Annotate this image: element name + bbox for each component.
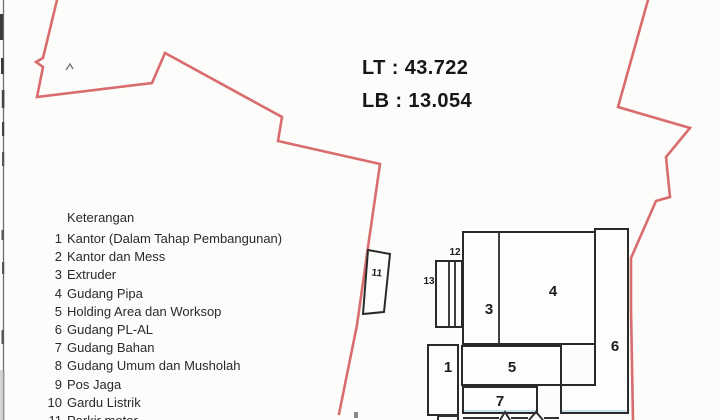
legend-item-label: Extruder [67, 267, 116, 282]
scan-edge-artifact [0, 0, 5, 420]
legend-item: 9Pos Jaga [42, 376, 282, 394]
building-6-label: 6 [611, 338, 619, 355]
buildings [363, 229, 628, 420]
legend-item: 4Gudang Pipa [42, 285, 282, 303]
legend-item: 1Kantor (Dalam Tahap Pembangunan) [42, 230, 282, 248]
building-1-outline [428, 345, 458, 415]
legend-item-number: 9 [42, 376, 62, 394]
legend-item-label: Kantor dan Mess [67, 249, 165, 264]
legend-item-number: 2 [42, 248, 62, 266]
building-3-4-outline [463, 232, 595, 344]
building-13-label: 13 [423, 276, 435, 287]
legend-item-number: 3 [42, 266, 62, 284]
building-1-label: 1 [444, 359, 452, 376]
legend-item-number: 5 [42, 303, 62, 321]
legend-item: 7Gudang Bahan [42, 339, 282, 357]
legend-item: 10Gardu Listrik [42, 394, 282, 412]
legend-item-label: Kantor (Dalam Tahap Pembangunan) [67, 231, 282, 246]
legend-item-label: Parkir motor [67, 413, 138, 420]
legend-item: 2Kantor dan Mess [42, 248, 282, 266]
legend-item-number: 7 [42, 339, 62, 357]
land-area-value: LT : 43.722 [362, 58, 468, 78]
building-5-label: 5 [508, 359, 516, 376]
legend-item-number: 10 [42, 394, 62, 412]
legend-list: 1Kantor (Dalam Tahap Pembangunan) 2Kanto… [42, 230, 282, 420]
legend: Keterangan 1Kantor (Dalam Tahap Pembangu… [42, 209, 282, 420]
legend-item-number: 8 [42, 357, 62, 375]
legend-item: 5Holding Area dan Worksop [42, 303, 282, 321]
building-11-outline [363, 250, 390, 314]
legend-item: 3Extruder [42, 266, 282, 284]
legend-item: 6Gudang PL-AL [42, 321, 282, 339]
legend-item-number: 6 [42, 321, 62, 339]
legend-item-label: Gudang Umum dan Musholah [67, 358, 240, 373]
building-3-label: 3 [485, 301, 493, 318]
building-area-value: LB : 13.054 [362, 91, 472, 111]
legend-item-label: Gudang PL-AL [67, 322, 153, 337]
building-12-label: 12 [449, 247, 461, 258]
legend-item-label: Pos Jaga [67, 377, 121, 392]
legend-item-number: 1 [42, 230, 62, 248]
legend-item-label: Gudang Pipa [67, 286, 143, 301]
legend-item-number: 11 [42, 412, 62, 420]
legend-item-number: 4 [42, 285, 62, 303]
legend-item-label: Holding Area dan Worksop [67, 304, 221, 319]
building-4-label: 4 [549, 283, 558, 300]
legend-item-label: Gudang Bahan [67, 340, 154, 355]
legend-item-label: Gardu Listrik [67, 395, 141, 410]
legend-item: 8Gudang Umum dan Musholah [42, 357, 282, 375]
legend-title: Keterangan [67, 209, 282, 227]
building-7-label: 7 [496, 393, 504, 410]
site-plan-page: 1 3 4 5 6 7 11 12 13 LT : 43.722 LB : 13… [0, 0, 720, 420]
legend-item: 11Parkir motor [42, 412, 282, 420]
building-11-label: 11 [371, 267, 383, 279]
